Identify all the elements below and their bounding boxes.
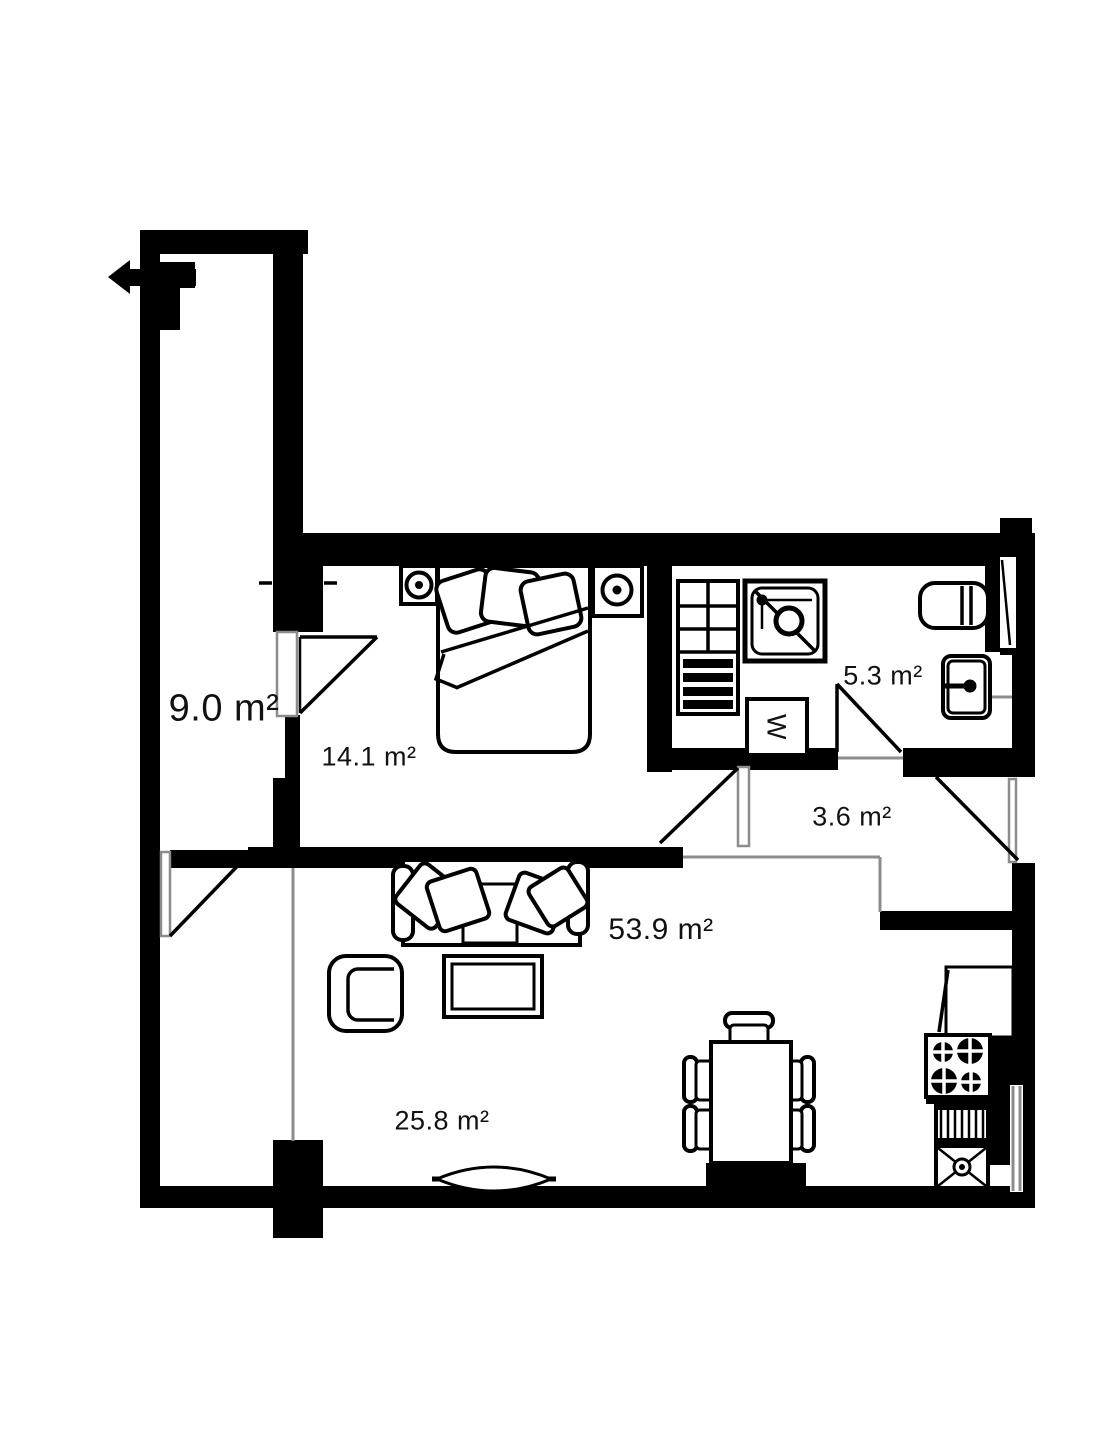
dish-drainer	[936, 1104, 988, 1144]
lamp-left-dot	[415, 581, 423, 589]
living-room-furniture	[329, 860, 590, 1191]
wall-corridor-right-upper	[273, 254, 303, 566]
wall-left-exterior	[140, 254, 160, 1208]
dining-set	[684, 1013, 814, 1163]
bathroom-door-swing	[837, 684, 901, 752]
rack-bar	[683, 659, 733, 668]
towel-rack	[678, 581, 738, 714]
room-label-dining-zone: 25.8 m²	[394, 1106, 489, 1137]
shower	[745, 581, 825, 661]
wall-top-main	[277, 533, 1032, 566]
arrow-shaft	[126, 269, 196, 286]
drainer-bar	[936, 1104, 988, 1110]
washing-machine-label: W	[761, 714, 792, 740]
room-label-hallway: 3.6 m²	[812, 802, 892, 833]
lamp-right-dot	[613, 586, 622, 595]
corridor-door-leaf	[161, 852, 170, 936]
bed-pillows	[434, 567, 583, 636]
washbasin-tap-dot	[964, 680, 977, 693]
wall-bedroom-right	[647, 566, 672, 772]
arrow-head	[108, 260, 130, 294]
entrance-door-swing	[936, 777, 1018, 860]
dining-table	[711, 1042, 791, 1163]
rack-bar	[683, 700, 733, 709]
vent-shaft-sill	[1000, 648, 1018, 655]
rack-bar	[683, 673, 733, 682]
washbasin	[943, 656, 990, 718]
floor-plan: 9.0 m² 14.1 m² 5.3 m² 3.6 m² 53.9 m² 25.…	[0, 0, 1113, 1440]
shower-drain	[776, 608, 802, 634]
coffee-table-inner	[452, 964, 534, 1009]
room-label-balcony: 9.0 m²	[169, 688, 280, 731]
toilet-bowl	[920, 583, 988, 628]
hallway-bedroom-door-swing	[660, 768, 738, 843]
wall-corridor-top	[140, 230, 308, 254]
sink-drain-dot	[959, 1164, 965, 1170]
bedroom-door-swing	[300, 637, 377, 713]
kitchen-sink	[936, 1146, 988, 1188]
wall-kitchen-top	[880, 911, 1012, 930]
toilet	[920, 583, 988, 628]
armchair	[329, 956, 402, 1031]
wall-pillar	[273, 1140, 323, 1238]
floor-plan-drawing	[0, 0, 1113, 1440]
room-label-bedroom: 14.1 m²	[321, 742, 416, 773]
wall-top-right-stub	[1000, 518, 1032, 534]
arrow-base-step	[158, 288, 180, 330]
wall-corridor-right-mid	[285, 715, 300, 780]
wall-corridor-right-lower	[273, 778, 300, 852]
room-label-bathroom: 5.3 m²	[843, 661, 923, 692]
drainer-bar	[936, 1138, 988, 1144]
wall-bedroom-left-block	[273, 566, 323, 632]
stove	[926, 1035, 990, 1104]
room-label-living-room: 53.9 m²	[608, 913, 713, 947]
kitchen-counter	[946, 967, 1013, 1037]
wall-dining-block	[706, 1163, 806, 1188]
coffee-table	[444, 956, 542, 1017]
wall-bathroom-bottom-right	[903, 748, 1012, 777]
rack-bar	[683, 687, 733, 696]
hallway-bedroom-door-leaf	[738, 767, 749, 846]
bedroom-furniture	[401, 566, 642, 752]
sofa	[393, 860, 590, 945]
bedroom-door-leaf	[277, 632, 297, 716]
counter-end-notch	[998, 1166, 1011, 1186]
bathroom-fixtures	[678, 581, 990, 755]
